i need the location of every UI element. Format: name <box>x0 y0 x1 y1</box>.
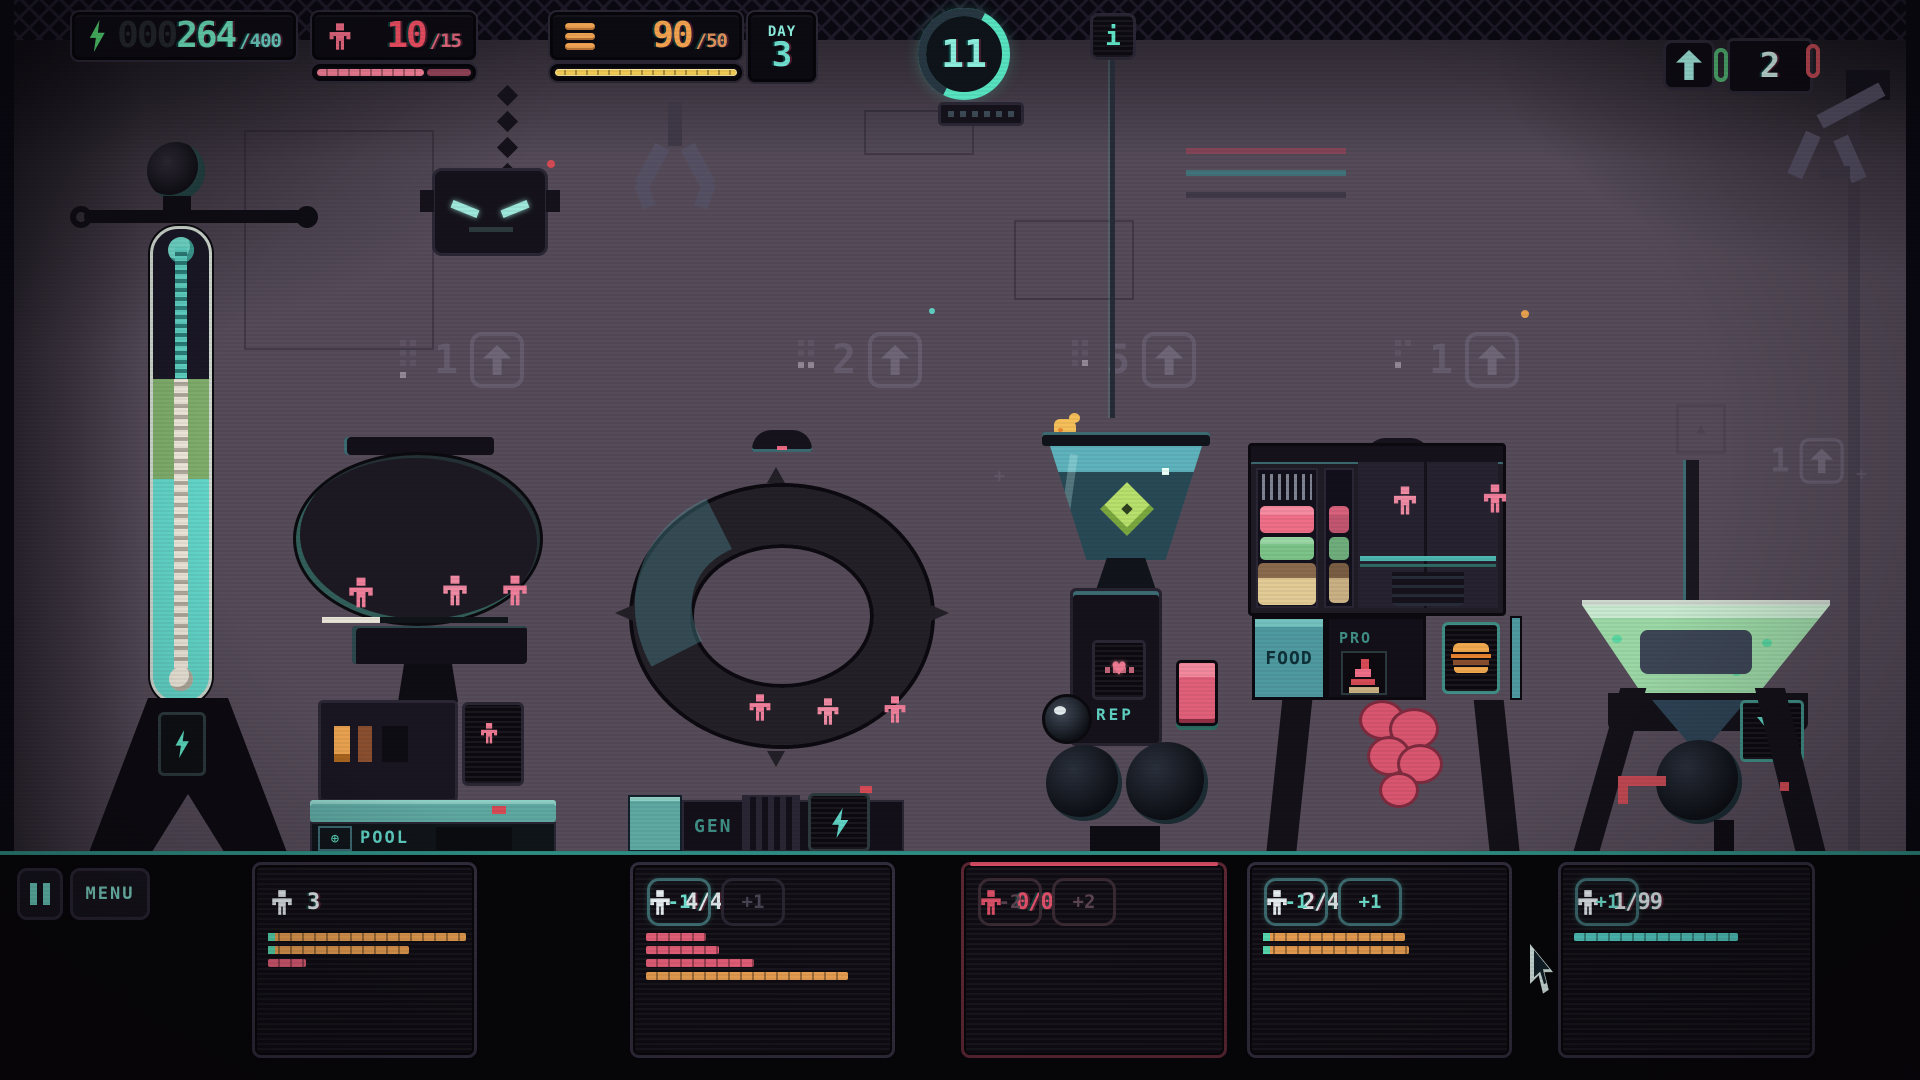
food-cake-green <box>1260 537 1314 560</box>
floating-dot-teal <box>929 308 935 314</box>
game-screen: ▲ + + 1 2 5 1 1 <box>0 0 1920 1080</box>
badge-pips <box>1395 340 1417 380</box>
remove-worker-button[interactable]: -2 <box>978 878 1042 926</box>
wave-timer-base <box>938 102 1024 126</box>
food-label: FOOD <box>1265 648 1312 669</box>
robot-mouth <box>469 227 513 232</box>
paperclip-icon <box>1806 44 1820 78</box>
pipe-teal <box>1186 170 1346 176</box>
food-column <box>1324 468 1354 608</box>
machine-panel-reproductor[interactable]: 0/0 -2 +2 <box>961 862 1227 1058</box>
burger-icon <box>1453 660 1489 665</box>
person-icon <box>330 23 351 49</box>
flask-rim <box>1042 432 1210 446</box>
food-icon <box>565 23 595 50</box>
energy-max: /400 <box>239 30 281 52</box>
machine-panel-generator[interactable]: 4/4 -1 +1 <box>630 862 895 1058</box>
gen-label: GEN <box>694 816 733 837</box>
population-value: 10 <box>386 18 425 54</box>
add-worker-button[interactable]: +1 <box>1338 878 1402 926</box>
rep-label: REP <box>1096 705 1134 724</box>
remove-worker-button[interactable]: -1 <box>647 878 711 926</box>
screen-frame-right <box>1906 0 1920 855</box>
robot-ear <box>546 190 560 212</box>
pool-base <box>310 800 556 822</box>
machine-food[interactable]: FOOD PRO <box>1248 420 1538 898</box>
progress-bar <box>646 946 719 954</box>
upgrade-badge: 1 <box>1395 332 1519 388</box>
crane-claw <box>630 102 720 212</box>
food-cake-green <box>1329 537 1349 560</box>
machine-funnel[interactable] <box>1582 420 1872 898</box>
day-counter: DAY 3 <box>748 12 816 82</box>
energy-pad: 000 <box>117 18 176 54</box>
machine-pool[interactable]: ⊕ POOL <box>293 435 583 897</box>
vat-rim <box>1582 600 1830 605</box>
pipe-gray <box>1186 192 1346 198</box>
panel-progress-bars <box>646 933 848 980</box>
intestine-guts <box>1359 700 1469 820</box>
robot-ear <box>420 190 434 212</box>
progress-bar <box>1263 946 1409 954</box>
info-glyph: i <box>1105 22 1121 52</box>
menu-button[interactable]: MENU <box>70 868 150 920</box>
gauge-bulb <box>169 667 193 691</box>
population-bar-rest <box>427 69 471 76</box>
chamber-pedestal <box>1392 572 1464 606</box>
upgrade-arrow-icon <box>470 332 524 388</box>
panel-progress-bars <box>1263 933 1409 954</box>
crosshair-mark: + <box>994 466 1005 487</box>
pool-icon: ⊕ <box>318 826 352 851</box>
human-figure <box>817 698 838 724</box>
hanging-lamp <box>752 430 812 452</box>
gauge-coil <box>175 247 187 387</box>
pool-light <box>492 806 506 814</box>
add-worker-button[interactable]: +1 <box>721 878 785 926</box>
factory-wall: ▲ + + 1 2 5 1 1 <box>14 40 1906 855</box>
human-figure <box>1484 484 1506 512</box>
add-worker-button[interactable]: +1 <box>1575 878 1639 926</box>
spark-icon <box>829 808 851 838</box>
pool-slot <box>334 726 350 762</box>
human-figure <box>349 578 372 608</box>
pipe-red <box>1186 148 1346 154</box>
crank-handle <box>1622 776 1666 786</box>
food-processor-window: PRO <box>1326 616 1426 700</box>
gauge-screw <box>174 379 188 679</box>
crank-handle <box>1618 776 1628 804</box>
lightning-icon <box>87 20 107 52</box>
food-cake-pink <box>1260 506 1314 533</box>
burger-icon <box>1453 643 1489 652</box>
info-pole <box>1110 60 1115 418</box>
gen-grill <box>742 795 800 852</box>
wheel-spike <box>615 605 633 621</box>
flask-neck <box>1096 558 1156 590</box>
red-canister <box>1176 660 1218 726</box>
machine-panel-food[interactable]: 2/4 -1 +1 <box>1247 862 1512 1058</box>
rep-screen: ♥ <box>1092 640 1146 700</box>
sparkle <box>1162 468 1169 475</box>
day-value: 3 <box>772 40 792 71</box>
human-figure <box>504 576 527 606</box>
pool-label: POOL <box>360 828 409 848</box>
energy-value: 264 <box>176 18 235 54</box>
wheel-spike <box>931 605 949 621</box>
badge-pips <box>1072 340 1094 380</box>
storage-counter: 2 <box>1727 38 1813 94</box>
food-counter: 90/50 <box>550 12 742 60</box>
pause-icon <box>30 883 37 905</box>
mixer-rotor <box>1640 630 1752 674</box>
progress-bar <box>268 933 466 941</box>
machine-energy-gauge[interactable] <box>70 102 330 902</box>
dome-stem <box>398 664 458 702</box>
human-figure <box>750 694 771 720</box>
population-counter: 10/15 <box>312 12 476 60</box>
menu-label: MENU <box>86 884 135 904</box>
gauge-ball <box>147 142 205 200</box>
human-figure <box>1394 486 1416 514</box>
chamber-shelf <box>1360 564 1496 567</box>
progress-bar <box>646 959 754 967</box>
robot-eye <box>451 200 480 218</box>
progress-bar <box>268 946 409 954</box>
food-side-strip <box>1510 616 1522 700</box>
food-label-plate: FOOD <box>1252 616 1326 700</box>
upgrade-arrow-icon <box>1465 332 1519 388</box>
pool-slot <box>358 726 372 762</box>
screen-frame-left <box>0 0 14 855</box>
burger-icon <box>1451 654 1491 658</box>
vent-hatch <box>1262 474 1312 500</box>
pool-screen <box>462 702 524 786</box>
population-max: /15 <box>430 30 461 52</box>
meat-window <box>1341 651 1387 695</box>
dome-pedestal <box>352 626 527 664</box>
wheel-spike <box>767 751 785 767</box>
add-worker-button[interactable]: +2 <box>1052 878 1116 926</box>
wheel-spike <box>767 467 785 483</box>
badge-value: 1 <box>434 337 458 383</box>
food-cake-tan <box>1329 563 1349 603</box>
progress-bar <box>1574 933 1738 941</box>
gen-light <box>860 786 872 793</box>
weight-sphere <box>1126 742 1208 824</box>
pool-slot-dark <box>436 827 512 850</box>
person-icon <box>481 723 497 743</box>
gen-plate <box>628 795 682 852</box>
angry-robot-head[interactable] <box>432 168 548 256</box>
lightning-icon <box>173 730 191 758</box>
food-chamber <box>1358 462 1498 608</box>
population-bar-fill <box>317 69 424 76</box>
gen-screen <box>808 793 870 852</box>
remove-worker-button[interactable]: -1 <box>1264 878 1328 926</box>
storage-value: 2 <box>1760 46 1780 86</box>
robot-light <box>547 160 555 168</box>
gauge-ring <box>70 206 92 228</box>
burger-icon <box>1454 667 1488 673</box>
food-value: 90 <box>652 18 691 54</box>
upgrade-all-button[interactable] <box>1663 40 1715 90</box>
upgrade-badge: 2 <box>798 332 922 388</box>
pool-slot <box>382 726 408 762</box>
food-shelf <box>1256 468 1318 608</box>
food-cake-tan <box>1258 563 1316 605</box>
machine-reproductor[interactable]: ♥ REP <box>1028 380 1228 897</box>
machine-panel-pool[interactable]: 3 <box>252 862 477 1058</box>
pause-button[interactable] <box>17 868 63 920</box>
gauge-crossbar <box>84 210 314 223</box>
energy-counter: 000264/400 <box>72 12 296 60</box>
rep-digits <box>1105 667 1134 673</box>
progress-bar <box>646 933 706 941</box>
weight-sphere <box>1046 745 1122 821</box>
wave-timer: 11 <box>918 8 1010 100</box>
wave-value: 11 <box>926 16 1002 92</box>
funnel-light <box>1780 782 1789 791</box>
food-bar-fill <box>555 69 737 76</box>
machine-leg <box>1266 700 1313 858</box>
machine-panel-funnel[interactable]: 1/99 +1 <box>1558 862 1815 1058</box>
robot-eye <box>501 200 530 218</box>
panel-progress-bars <box>1574 933 1738 941</box>
badge-value: 2 <box>832 337 856 383</box>
pro-label: PRO <box>1339 629 1372 647</box>
up-arrow-icon <box>1676 50 1702 80</box>
machine-leg <box>1755 688 1827 858</box>
pause-icon <box>43 883 50 905</box>
floating-dot-orange <box>1521 310 1529 318</box>
badge-pips <box>400 340 422 380</box>
dome-floor <box>322 617 380 623</box>
progress-bar <box>268 959 306 967</box>
wall-panel <box>1014 220 1134 300</box>
food-cake-pink <box>1329 506 1349 533</box>
progress-bar <box>646 972 848 980</box>
upgrade-arrow-icon <box>868 332 922 388</box>
chamber-shelf <box>1360 556 1496 561</box>
mixer-sphere <box>1656 740 1742 824</box>
badge-pips <box>798 340 820 380</box>
person-icon <box>272 890 292 915</box>
human-figure <box>885 696 906 722</box>
gauge-energy-panel <box>158 712 206 776</box>
burger-screen <box>1442 622 1500 694</box>
upgrade-badge: 1 <box>400 332 524 388</box>
food-bar <box>550 64 742 81</box>
food-max: /50 <box>696 30 727 52</box>
population-bar <box>312 64 476 81</box>
progress-bar <box>1263 933 1405 941</box>
dome-floor <box>380 617 508 623</box>
panel-progress-bars <box>268 933 466 967</box>
panel-count: 3 <box>307 890 319 915</box>
gauge-ring <box>296 206 318 228</box>
human-figure <box>443 576 466 606</box>
gauge-tube <box>150 226 212 704</box>
machine-generator[interactable]: GEN <box>619 415 939 897</box>
info-button[interactable]: i <box>1090 13 1136 60</box>
badge-value: 1 <box>1429 337 1453 383</box>
paperclip-icon <box>1714 48 1728 82</box>
rep-knob <box>1042 694 1092 744</box>
machine-leg <box>1474 700 1521 858</box>
